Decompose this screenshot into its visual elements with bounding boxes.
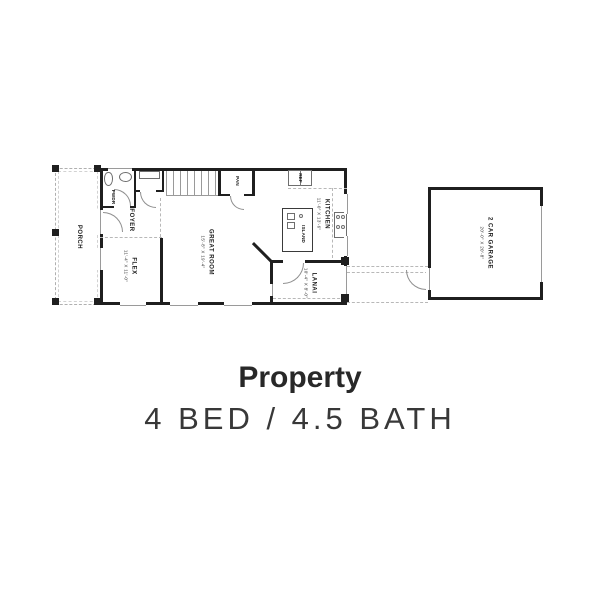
island-sink-basin xyxy=(287,213,295,220)
wall xyxy=(162,168,164,192)
burner xyxy=(341,215,345,219)
toilet xyxy=(104,172,113,186)
island-sink-basin xyxy=(287,222,295,229)
room-label-pantry: PAN xyxy=(234,176,240,186)
walkway-dashed xyxy=(347,266,428,267)
door-arc xyxy=(406,270,426,290)
window xyxy=(170,302,198,308)
room-label-kitchen: KITCHEN 11'-0" X 13'-6" xyxy=(316,198,329,231)
island-faucet xyxy=(299,214,303,218)
room-label-flex: FLEX 11'-4" X 11'-0" xyxy=(123,250,136,282)
closet-shelf xyxy=(139,171,160,179)
property-title: Property xyxy=(0,361,600,395)
lanai-open-side xyxy=(344,266,348,294)
garage-door-opening xyxy=(538,206,544,282)
opening-dashed xyxy=(160,198,161,237)
wall xyxy=(160,238,163,305)
bed-bath-summary: 4 BED / 4.5 BATH xyxy=(0,401,600,437)
room-label-pwdr: PWDR xyxy=(110,190,116,205)
counter-dashed xyxy=(332,188,333,258)
porch-post xyxy=(52,165,59,172)
window xyxy=(344,194,350,214)
wall xyxy=(218,168,221,196)
lanai-post xyxy=(341,257,349,265)
wall xyxy=(156,190,164,192)
wall xyxy=(134,168,136,208)
fridge-label: REF xyxy=(297,173,303,183)
room-label-garage: 2 CAR GARAGE 20'-0" X 20'-8" xyxy=(479,217,492,269)
burner xyxy=(341,225,345,229)
window xyxy=(108,165,132,171)
porch-post xyxy=(52,229,59,236)
room-label-foyer: FOYER xyxy=(126,208,134,231)
walkway-dashed xyxy=(347,302,428,303)
window xyxy=(120,302,146,308)
window xyxy=(224,302,252,308)
wall xyxy=(100,206,114,208)
wall xyxy=(218,194,230,196)
wall xyxy=(252,168,255,196)
floorplan-image: PORCH PWDR FOYER FLEX 11'-4" X 11'-0" PA… xyxy=(0,0,600,600)
room-label-great-room: GREAT ROOM 15'-8" X 19'-4" xyxy=(200,229,213,275)
garage-entry-opening xyxy=(426,268,432,290)
opening-dashed xyxy=(100,237,162,238)
counter-dashed xyxy=(288,188,347,189)
room-label-lanai: LANAI 10'-4" X 8'-0" xyxy=(303,268,316,298)
window xyxy=(269,284,274,296)
sink xyxy=(119,172,132,182)
lanai-post xyxy=(341,294,349,302)
porch-post xyxy=(52,298,59,305)
window xyxy=(344,236,350,256)
burner xyxy=(336,215,340,219)
window xyxy=(97,248,103,270)
room-label-porch: PORCH xyxy=(74,225,82,249)
island-label: ISLAND xyxy=(300,225,306,243)
burner xyxy=(336,225,340,229)
stairs xyxy=(166,171,218,196)
screen-dashed xyxy=(273,298,345,299)
wall xyxy=(244,194,255,196)
